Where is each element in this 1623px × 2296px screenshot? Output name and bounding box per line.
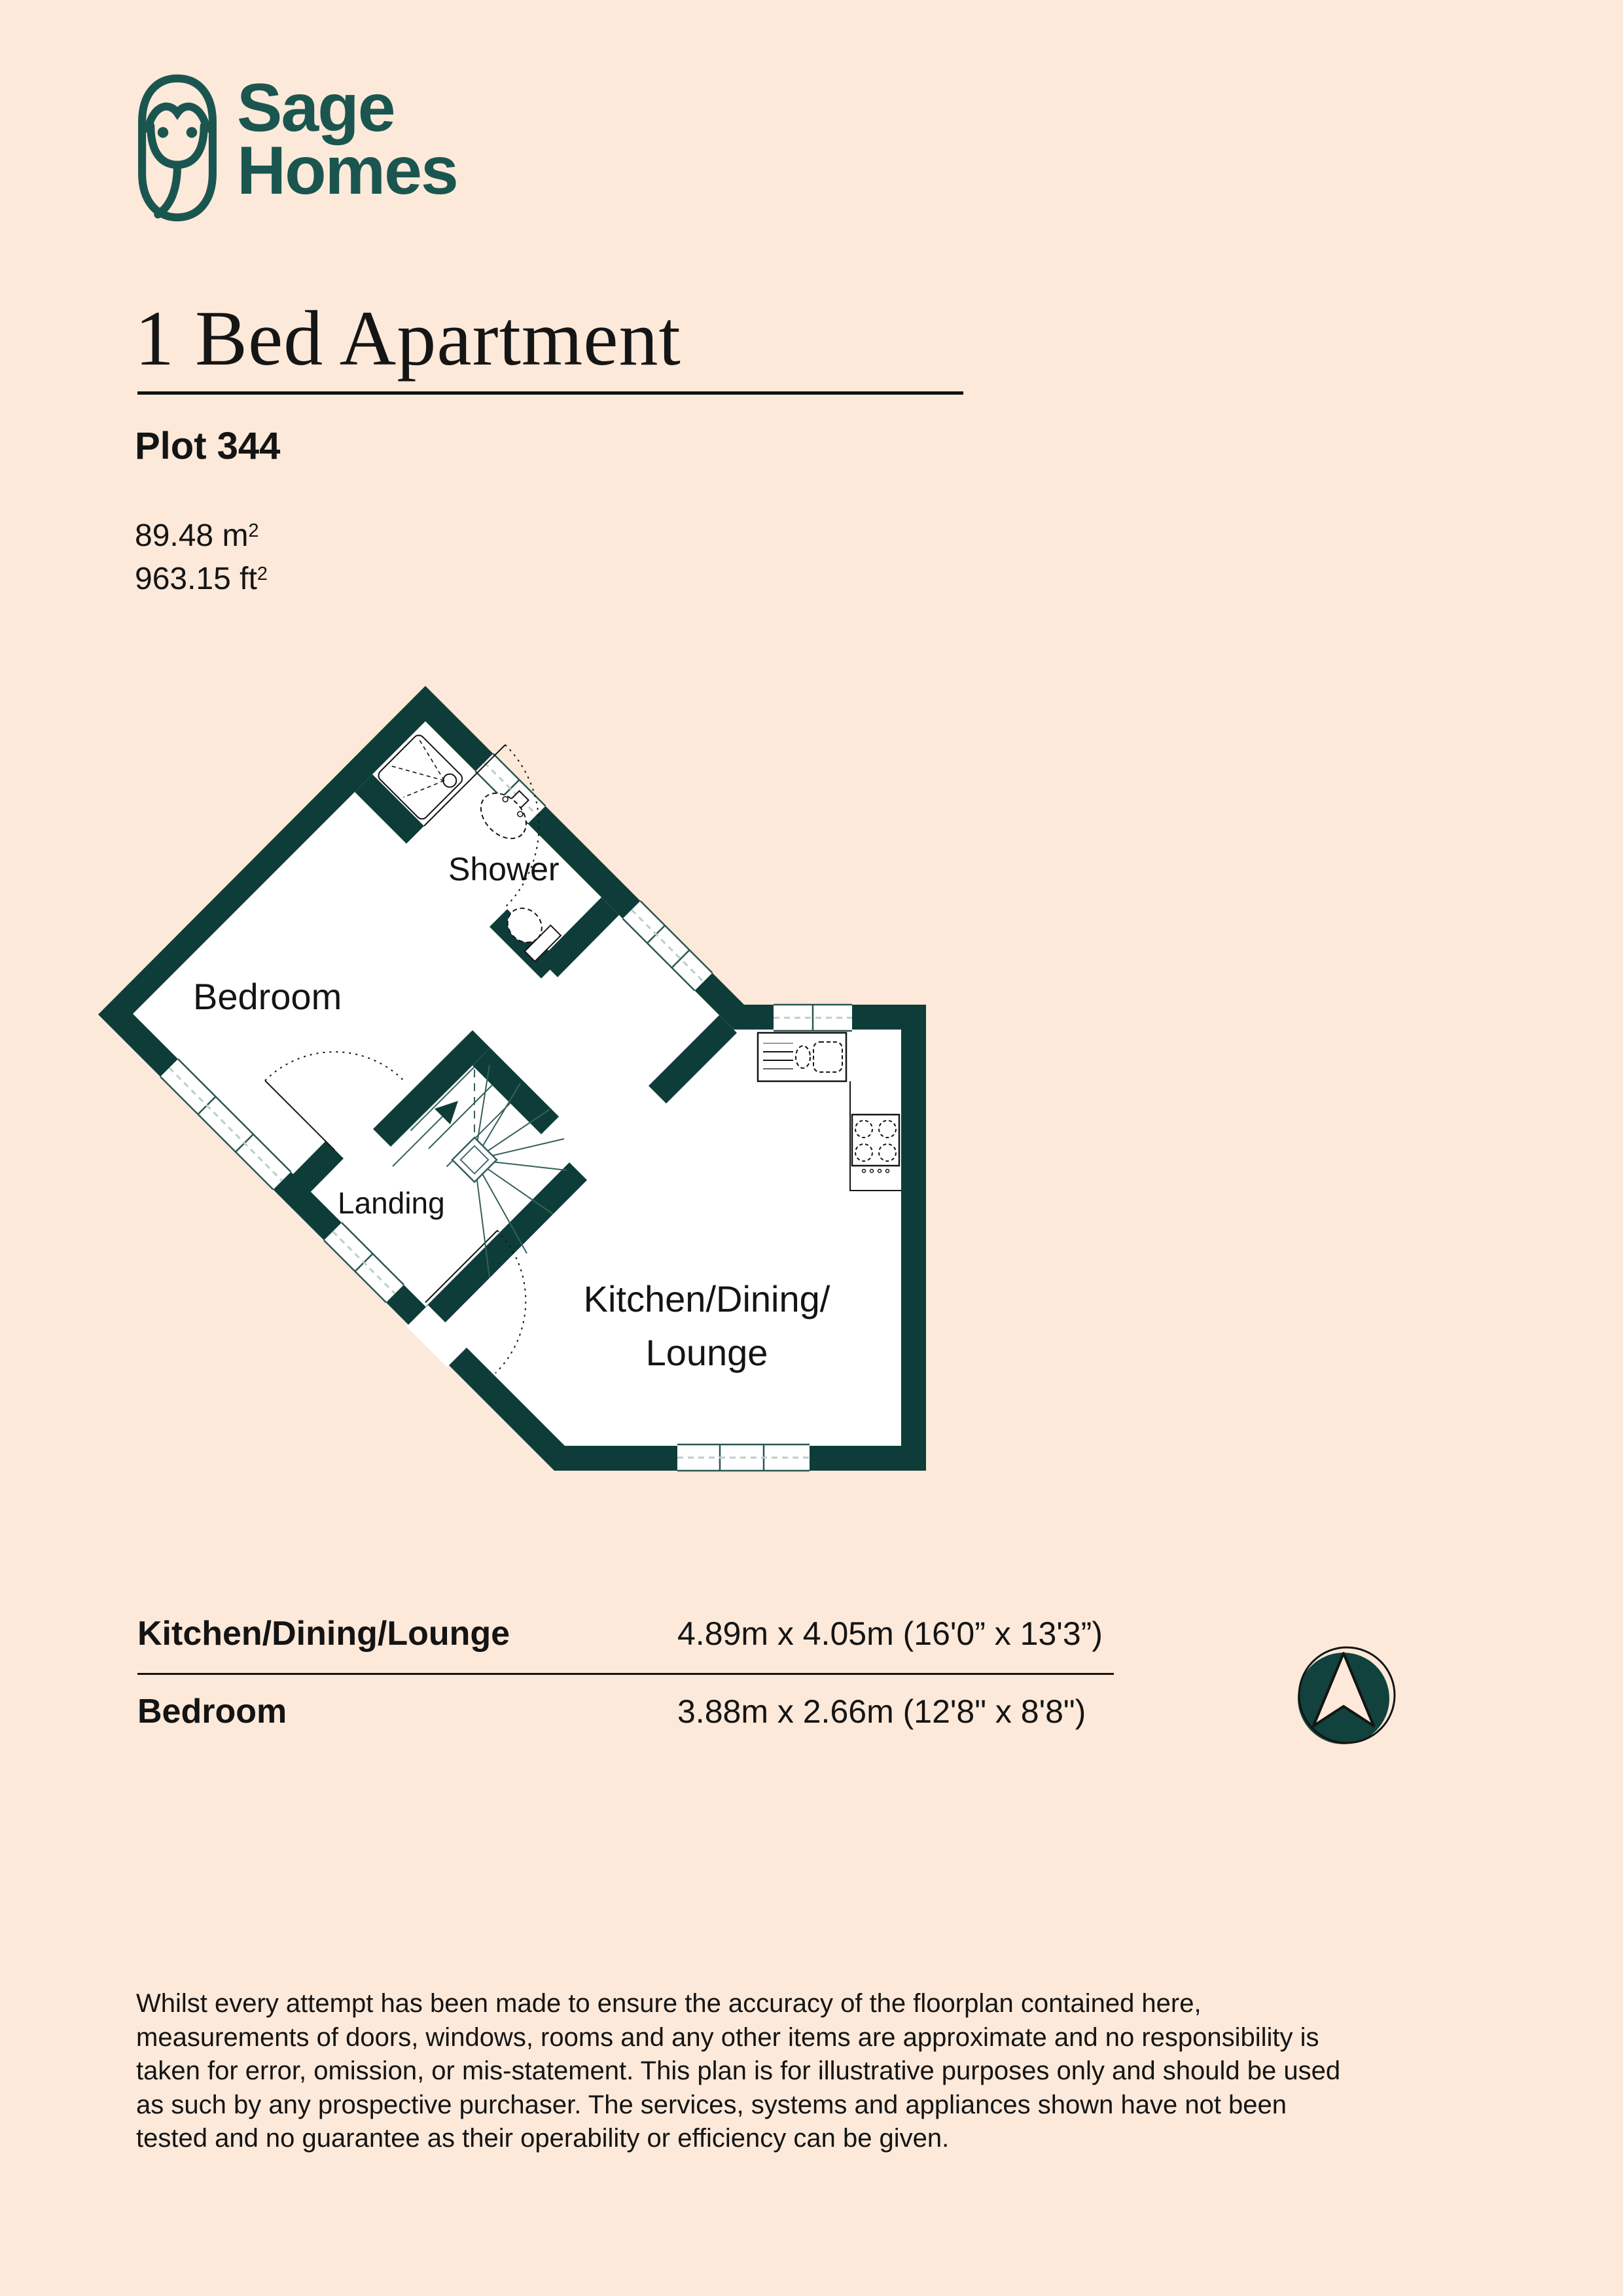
- north-arrow: [1298, 1647, 1395, 1744]
- room-name: Kitchen/Dining/Lounge: [137, 1614, 677, 1653]
- label-bedroom: Bedroom: [193, 976, 342, 1017]
- label-landing: Landing: [338, 1186, 445, 1220]
- sink-unit: [758, 1033, 846, 1081]
- hob: [852, 1115, 899, 1166]
- room-name: Bedroom: [137, 1692, 677, 1731]
- label-shower: Shower: [448, 851, 560, 888]
- room-size: 4.89m x 4.05m (16'0” x 13'3”): [677, 1615, 1103, 1653]
- table-row: Kitchen/Dining/Lounge 4.89m x 4.05m (16'…: [137, 1597, 1114, 1673]
- disclaimer-text: Whilst every attempt has been made to en…: [136, 1987, 1365, 2156]
- table-row: Bedroom 3.88m x 2.66m (12'8" x 8'8"): [137, 1675, 1114, 1751]
- label-kitchen-line2: Lounge: [646, 1332, 768, 1373]
- room-size: 3.88m x 2.66m (12'8" x 8'8"): [677, 1693, 1086, 1731]
- floorplan: Shower Bedroom Landing Kitchen/Dining/ L…: [0, 0, 1623, 2296]
- brochure-page: Sage Homes 1 Bed Apartment Plot 344 89.4…: [0, 0, 1623, 2296]
- dimensions-table: Kitchen/Dining/Lounge 4.89m x 4.05m (16'…: [137, 1597, 1114, 1751]
- label-kitchen-line1: Kitchen/Dining/: [584, 1278, 830, 1319]
